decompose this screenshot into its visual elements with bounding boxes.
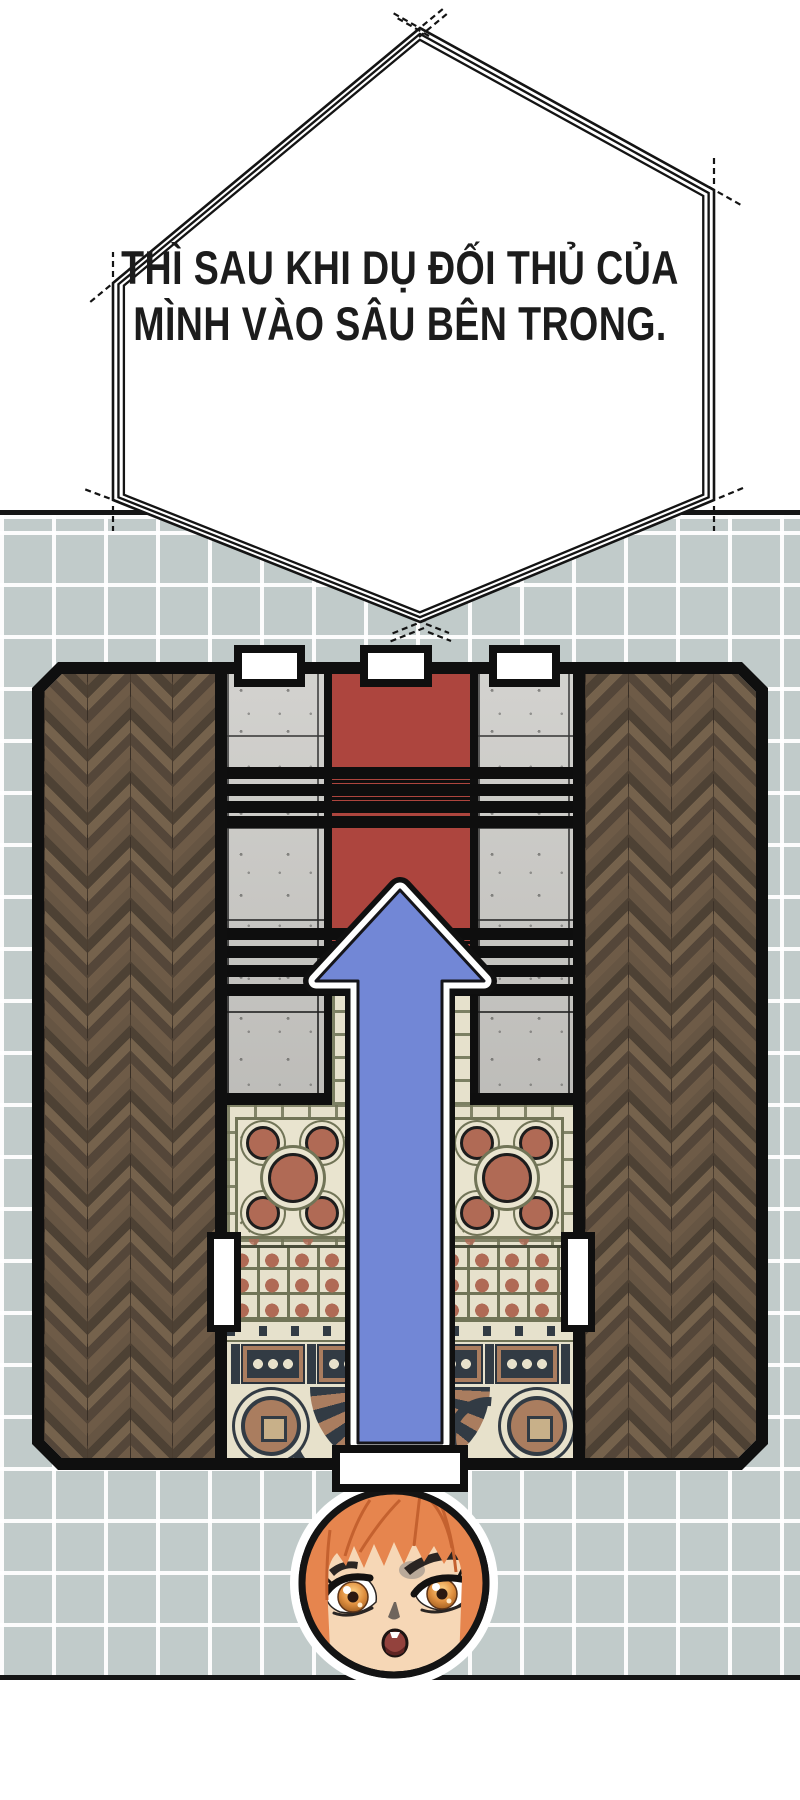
wood-strip <box>671 674 714 1458</box>
wood-strip <box>585 674 628 1458</box>
divider-left <box>215 674 227 1458</box>
bottom-door <box>332 1445 468 1492</box>
wood-strip <box>628 674 671 1458</box>
direction-arrow <box>270 860 530 1460</box>
wood-strip <box>87 674 130 1458</box>
side-handle-left <box>207 1232 241 1332</box>
wood-panel-left <box>44 674 215 1458</box>
divider-right <box>573 674 585 1458</box>
top-door-3 <box>489 645 560 687</box>
up-arrow-icon <box>316 890 484 1443</box>
mouth <box>383 1630 407 1656</box>
wood-strip <box>44 674 87 1458</box>
wood-strip <box>130 674 173 1458</box>
bubble-text-line-2: MÌNH VÀO SÂU BÊN TRONG. <box>80 296 720 351</box>
bubble-text-line-1: THÌ SAU KHI DỤ ĐỐI THỦ CỦA <box>80 240 720 295</box>
top-door-2 <box>360 645 432 687</box>
comic-panel: THÌ SAU KHI DỤ ĐỐI THỦ CỦA MÌNH VÀO SÂU … <box>0 0 800 1800</box>
wood-strip <box>172 674 215 1458</box>
side-handle-right <box>561 1232 595 1332</box>
wood-panel-right <box>585 674 756 1458</box>
top-door-1 <box>234 645 305 687</box>
wood-strip <box>713 674 756 1458</box>
character-head <box>282 1468 506 1692</box>
